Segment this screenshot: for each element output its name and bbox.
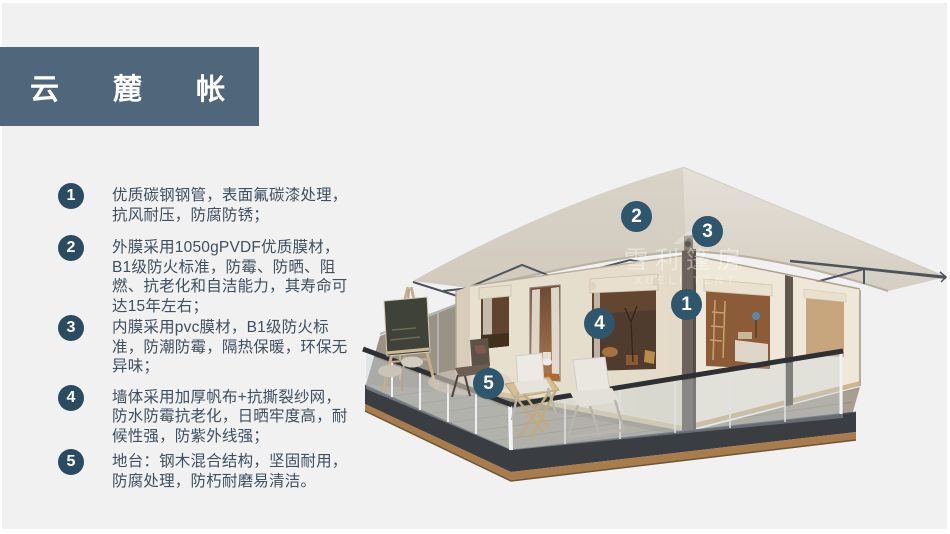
callout-marker-5: 5	[473, 368, 504, 399]
watermark-en: XUELI TENT	[634, 275, 737, 287]
window-right-outer	[804, 289, 846, 357]
callout-marker-4: 4	[584, 308, 615, 339]
callout-marker-2: 2	[621, 201, 652, 232]
window-right-inner	[704, 279, 772, 369]
tent-render: 雪利篷房 XUELI TENT	[0, 0, 950, 534]
callout-marker-1: 1	[671, 289, 702, 320]
slide-page: 云 麓 帐 篷 1 优质碳钢钢管，表面氟碳漆处理，抗风耐压，防腐防锈； 2 外膜…	[0, 0, 950, 534]
callout-marker-3: 3	[692, 216, 723, 247]
watermark-cn: 雪利篷房	[624, 247, 748, 274]
